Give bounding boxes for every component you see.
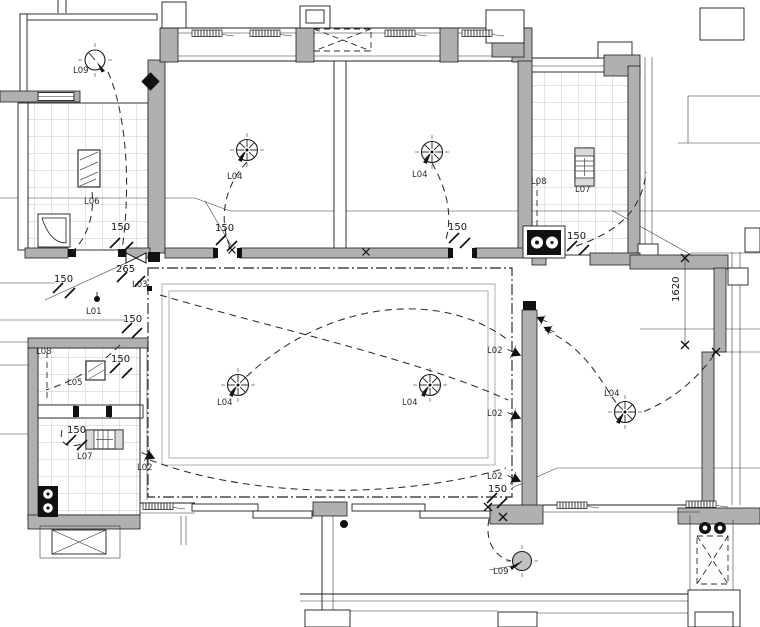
cooktop-icon (38, 486, 58, 517)
dimension-text: 150 (54, 274, 73, 285)
light-label: L02 (487, 409, 503, 419)
light-label: L02 (487, 346, 503, 356)
point-light-icon (94, 292, 100, 302)
light-label: L02 (137, 463, 153, 473)
light-label: L04 (604, 389, 620, 399)
downlight-icon (147, 286, 152, 291)
dimension-text: 150 (567, 231, 586, 242)
dimension-text: 265 (116, 264, 135, 275)
window-coil-icon (143, 503, 185, 510)
wall-light-icon (505, 469, 525, 488)
ceiling-light-icon (608, 395, 642, 429)
light-label: L04 (227, 172, 243, 182)
light-label: L09 (493, 567, 509, 577)
ac-platform-icon (314, 29, 371, 51)
light-label: L08 (531, 177, 547, 187)
bath-light-icon (78, 150, 100, 187)
wall-light-icon (505, 343, 525, 362)
dimension-text: 150 (215, 223, 234, 234)
lighting-ceiling-plan: L09L06L04L04L08L07L04L04L04L03L01L02L02L… (0, 0, 760, 627)
walls (0, 0, 760, 627)
bath-light-icon (86, 361, 105, 380)
wall-light-icon (505, 406, 525, 425)
dimension-text: 1620 (671, 277, 682, 302)
light-label: L03 (132, 280, 148, 290)
ceiling-light-icon (413, 368, 447, 402)
switch-dot-icon (340, 520, 348, 528)
dimension-text: 150 (448, 222, 467, 233)
dimension-text: 150 (111, 222, 130, 233)
light-label: L04 (412, 170, 428, 180)
wall-light-icon (541, 322, 557, 337)
grille-light-icon (86, 430, 123, 449)
light-label: L04 (402, 398, 418, 408)
light-label: L01 (86, 307, 102, 317)
light-label: L04 (217, 398, 233, 408)
shower-tray-icon (38, 214, 70, 247)
light-label: L05 (67, 378, 83, 388)
ceiling-light-icon (230, 133, 264, 167)
light-label: L06 (84, 197, 100, 207)
light-label: L07 (575, 185, 591, 195)
window-coil-icon (686, 501, 728, 508)
dimension-text: 150 (123, 314, 142, 325)
dimension-ticks (53, 233, 720, 508)
dimension-text: 150 (488, 484, 507, 495)
cooktop-icon (523, 226, 565, 258)
dimension-text: 150 (111, 354, 130, 365)
grille-light-icon (575, 148, 594, 186)
duct-shaft-icon (697, 522, 728, 584)
light-label: L09 (73, 66, 89, 76)
light-label: L07 (77, 452, 93, 462)
dimension-text: 150 (67, 425, 86, 436)
duct-shaft-icon (40, 526, 120, 558)
light-label: L08 (36, 347, 52, 357)
living-room-cove (148, 268, 512, 497)
floor-plan-canvas: L09L06L04L04L08L07L04L04L04L03L01L02L02L… (0, 0, 760, 627)
light-label: L02 (487, 472, 503, 482)
